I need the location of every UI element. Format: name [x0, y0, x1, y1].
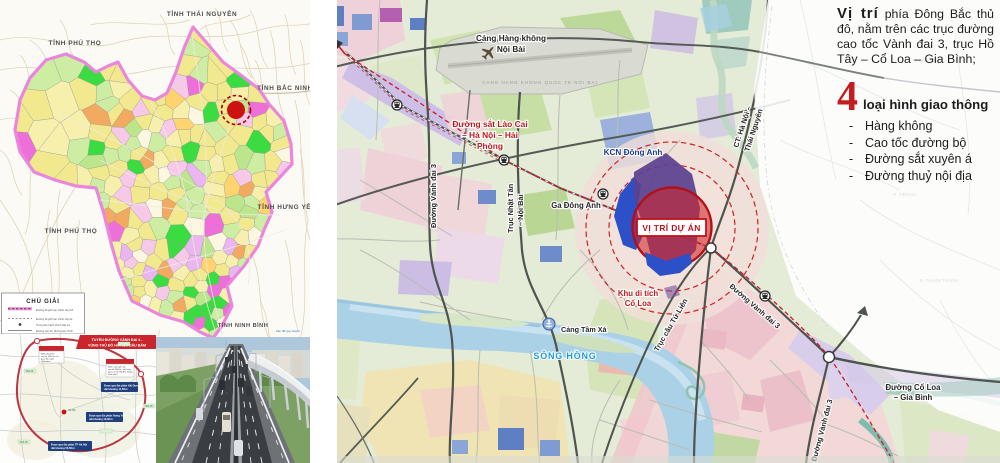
- svg-text:CHÚ GIẢI: CHÚ GIẢI: [26, 298, 59, 305]
- svg-text:– Nội Bài: – Nội Bài: [516, 194, 525, 226]
- svg-text:Cảng Hàng không: Cảng Hàng không: [476, 34, 546, 43]
- svg-text:dài khoảng 56,5Km: dài khoảng 56,5Km: [51, 446, 75, 450]
- svg-text:H. TIÊN DU: H. TIÊN DU: [893, 190, 917, 197]
- svg-text:Đường đi giới hạn chính xây th: Đường đi giới hạn chính xây thô: [36, 308, 74, 312]
- svg-text:CANG HANG KHONG QUOC TE NOI BA: CANG HANG KHONG QUOC TE NOI BAI: [482, 80, 597, 85]
- svg-text:VĐ4-09: VĐ4-09: [20, 441, 29, 444]
- svg-text:dài khoảng 19,3Km: dài khoảng 19,3Km: [89, 417, 113, 421]
- svg-text:Đường Cổ Loa: Đường Cổ Loa: [886, 383, 942, 392]
- svg-text:Đường đi giới hạn chính xây dè: Đường đi giới hạn chính xây dè: [36, 317, 73, 321]
- svg-text:Nội Bài: Nội Bài: [497, 45, 525, 54]
- svg-text:Trục Nhật Tân: Trục Nhật Tân: [506, 183, 515, 233]
- svg-text:Ga Đông Anh: Ga Đông Anh: [551, 201, 601, 210]
- svg-text:Đường Vành đai 3: Đường Vành đai 3: [429, 164, 438, 228]
- svg-text:TỈNH NINH BÌNH: TỈNH NINH BÌNH: [218, 321, 269, 329]
- svg-text:VỊ TRÍ DỰ ÁN: VỊ TRÍ DỰ ÁN: [642, 222, 700, 233]
- svg-text:Đoạn qua địa phận Hải Dương: Đoạn qua địa phận Hải Dương: [104, 384, 142, 388]
- svg-text:TỈNH THÁI NGUYÊN: TỈNH THÁI NGUYÊN: [167, 9, 237, 18]
- svg-text:Cổ Loa: Cổ Loa: [625, 299, 652, 308]
- svg-text:Hà Nội: Hà Nội: [68, 409, 76, 412]
- svg-text:TỈNH PHÚ THỌ: TỈNH PHÚ THỌ: [45, 226, 98, 235]
- svg-text:TỈNH BẮC NINH: TỈNH BẮC NINH: [257, 83, 310, 92]
- svg-text:Đường sắt Lào Cai: Đường sắt Lào Cai: [452, 118, 527, 129]
- svg-text:VĐ4-05: VĐ4-05: [145, 405, 154, 408]
- svg-text:TỈNH HƯNG YÊN: TỈNH HƯNG YÊN: [258, 202, 310, 211]
- svg-text:Đoạn qua địa phận Hưng Yên: Đoạn qua địa phận Hưng Yên: [89, 414, 126, 418]
- svg-text:TỈNH PHÚ THỌ: TỈNH PHÚ THỌ: [49, 38, 102, 47]
- svg-text:Đoạn qua địa phận TP Hà Nội: Đoạn qua địa phận TP Hà Nội: [51, 443, 87, 447]
- svg-text:VÙNG THỦ ĐÔ HÀ NỘI: DẤU BẤM: VÙNG THỦ ĐÔ HÀ NỘI: DẤU BẤM: [88, 343, 146, 348]
- svg-text:Phòng: Phòng: [477, 141, 503, 151]
- svg-text:H. THUẬN THÀNH: H. THUẬN THÀNH: [920, 277, 958, 283]
- svg-text:bản đồ quy hoạch: bản đồ quy hoạch: [276, 329, 300, 333]
- svg-text:dài khoảng 11,5Km: dài khoảng 11,5Km: [104, 387, 128, 391]
- svg-text:– Hà Nội – Hải: – Hà Nội – Hải: [462, 130, 518, 140]
- svg-text:– Gia Bình: – Gia Bình: [894, 393, 933, 402]
- svg-text:Vành đai 4: Vành đai 4: [108, 373, 118, 376]
- svg-text:Cảng Tầm Xá: Cảng Tầm Xá: [561, 325, 608, 334]
- svg-text:KCN Đông Anh: KCN Đông Anh: [604, 148, 663, 157]
- svg-text:TUYẾN ĐƯỜNG VÀNH ĐAI 4 -: TUYẾN ĐƯỜNG VÀNH ĐAI 4 -: [92, 337, 144, 342]
- svg-text:Vành đai 4: Vành đai 4: [41, 360, 51, 363]
- svg-text:VĐ4-01: VĐ4-01: [26, 370, 35, 373]
- svg-text:Khu di tích: Khu di tích: [618, 289, 659, 298]
- svg-text:Đường cao ốc, đường lạc chính: Đường cao ốc, đường lạc chính: [36, 329, 73, 333]
- svg-text:SÔNG HỒNG: SÔNG HỒNG: [533, 350, 596, 361]
- svg-text:Trung tâm hành chính cấp xã: Trung tâm hành chính cấp xã: [36, 323, 70, 327]
